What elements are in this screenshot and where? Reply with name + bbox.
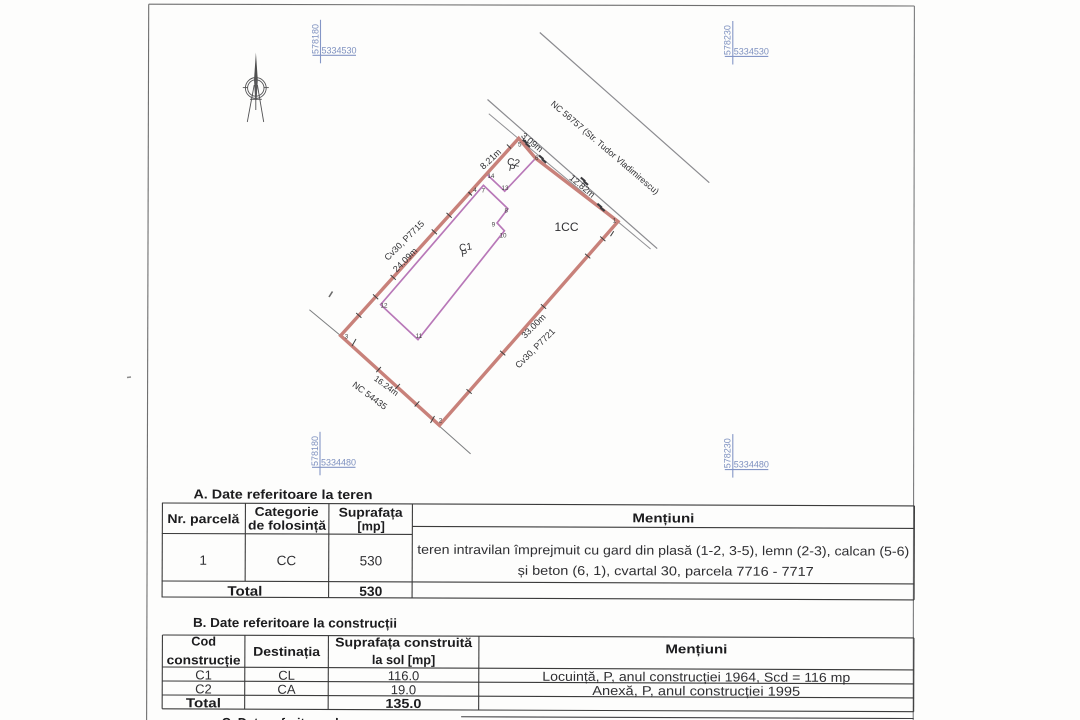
svg-text:11: 11 bbox=[416, 333, 423, 340]
svg-text:9: 9 bbox=[492, 222, 496, 229]
svg-text:135.0: 135.0 bbox=[385, 696, 421, 711]
svg-text:3: 3 bbox=[345, 333, 349, 340]
svg-text:la sol [mp]: la sol [mp] bbox=[372, 653, 436, 667]
svg-text:CC: CC bbox=[277, 553, 297, 568]
svg-text:Total: Total bbox=[186, 695, 221, 710]
svg-text:CL: CL bbox=[278, 668, 295, 683]
svg-text:A. Date referitoare la teren: A. Date referitoare la teren bbox=[193, 486, 372, 502]
svg-text:Cod: Cod bbox=[191, 635, 216, 649]
svg-text:C2: C2 bbox=[195, 681, 212, 696]
svg-text:14: 14 bbox=[488, 174, 495, 180]
svg-text:6: 6 bbox=[535, 155, 539, 162]
svg-text:530: 530 bbox=[359, 584, 382, 599]
svg-text:teren intravilan împrejmuit cu: teren intravilan împrejmuit cu gard din … bbox=[417, 542, 909, 559]
svg-text:Mențiuni: Mențiuni bbox=[665, 642, 727, 656]
svg-text:C. Date referitoare la: C. Date referitoare la bbox=[222, 716, 347, 720]
svg-text:5334480: 5334480 bbox=[321, 457, 356, 467]
svg-text:116.0: 116.0 bbox=[388, 668, 420, 683]
svg-text:578230: 578230 bbox=[723, 438, 733, 468]
svg-text:Anexă, P, anul construcției 19: Anexă, P, anul construcției 1995 bbox=[592, 683, 800, 699]
svg-text:578230: 578230 bbox=[723, 25, 733, 55]
svg-text:[mp]: [mp] bbox=[357, 519, 385, 533]
svg-text:1: 1 bbox=[613, 218, 617, 225]
svg-text:12: 12 bbox=[380, 302, 388, 309]
svg-text:1: 1 bbox=[199, 553, 207, 568]
svg-text:C1: C1 bbox=[195, 667, 212, 682]
svg-text:de folosință: de folosință bbox=[248, 519, 327, 533]
svg-text:CA: CA bbox=[277, 682, 295, 697]
svg-text:Suprafața: Suprafața bbox=[339, 506, 404, 520]
svg-text:5334530: 5334530 bbox=[734, 46, 769, 56]
svg-text:Categorie: Categorie bbox=[255, 505, 319, 519]
svg-text:1CC: 1CC bbox=[554, 220, 578, 234]
svg-text:10: 10 bbox=[499, 232, 507, 239]
svg-text:4: 4 bbox=[473, 187, 477, 194]
svg-text:B. Date referitoare la constru: B. Date referitoare la construcții bbox=[193, 615, 397, 631]
svg-text:Nr. parcelă: Nr. parcelă bbox=[167, 512, 240, 526]
svg-text:5334480: 5334480 bbox=[734, 460, 769, 470]
svg-text:530: 530 bbox=[360, 553, 383, 568]
svg-text:Suprafața construită: Suprafața construită bbox=[335, 635, 473, 650]
svg-text:5334530: 5334530 bbox=[322, 45, 357, 55]
svg-text:și beton (6, 1), cvartal 30, p: și beton (6, 1), cvartal 30, parcela 771… bbox=[518, 563, 814, 579]
svg-text:2: 2 bbox=[439, 417, 443, 424]
svg-text:578180: 578180 bbox=[310, 436, 320, 466]
svg-text:construcție: construcție bbox=[167, 653, 241, 667]
svg-text:Total: Total bbox=[227, 584, 262, 599]
svg-text:8: 8 bbox=[504, 208, 508, 215]
svg-text:5: 5 bbox=[518, 142, 522, 149]
svg-text:13: 13 bbox=[501, 185, 509, 192]
svg-text:Mențiuni: Mențiuni bbox=[632, 511, 694, 525]
svg-text:P: P bbox=[508, 163, 516, 175]
svg-text:7: 7 bbox=[481, 187, 485, 194]
svg-text:578180: 578180 bbox=[310, 24, 320, 54]
svg-text:Destinația: Destinația bbox=[253, 645, 321, 659]
